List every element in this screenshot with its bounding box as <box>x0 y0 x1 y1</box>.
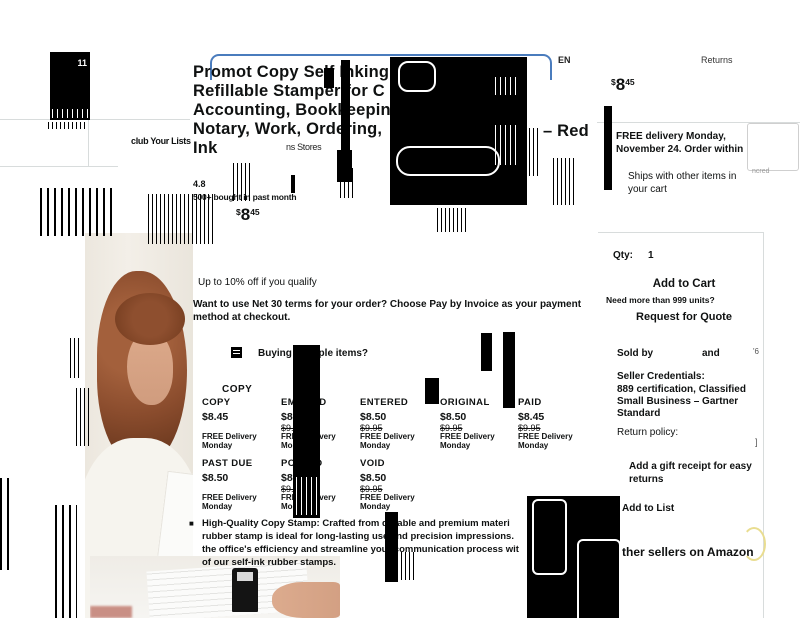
nav-lists-glitch[interactable]: club Your Lists <box>131 136 191 146</box>
fragment-text: ] <box>755 437 758 447</box>
gift-receipt-option-line2: returns <box>629 474 663 485</box>
seller-credentials-line: Standard <box>617 408 660 419</box>
gift-receipt-option[interactable]: Add a gift receipt for easy <box>629 461 752 472</box>
title-red-suffix: – Red <box>543 122 589 141</box>
coupon-offer[interactable]: Up to 10% off if you qualify <box>198 277 317 288</box>
variant-tile-entered[interactable]: ENTERED $8.50 $9.95 FREE Delivery Monday <box>360 397 436 450</box>
glitch-mark <box>553 158 575 205</box>
buybox-top-border <box>598 232 763 233</box>
variant-name: PAID <box>518 397 594 408</box>
glitch-mark <box>291 175 295 193</box>
glitch-mark <box>385 512 398 582</box>
seller-credentials-title: Seller Credentials: <box>617 371 705 382</box>
add-to-list-button[interactable]: Add to List <box>622 503 674 514</box>
variant-price: $8.45 <box>518 412 594 423</box>
variant-delivery-day: Monday <box>360 441 390 450</box>
glitch-mark <box>340 168 354 198</box>
variant-tile-paid[interactable]: PAID $8.45 $9.95 FREE Delivery Monday <box>518 397 594 450</box>
main-price: $845 <box>236 205 260 225</box>
glitch-mark <box>76 388 92 446</box>
glitch-arc <box>742 527 766 561</box>
glitch-mark <box>495 77 517 95</box>
need-more-units-note: Need more than 999 units? <box>606 295 715 305</box>
variant-delivery-day: Monday <box>440 441 470 450</box>
stamp-shape <box>232 568 258 612</box>
variant-delivery-day: Monday <box>202 502 232 511</box>
glitch-mark <box>529 128 541 176</box>
hand-shape <box>272 582 340 618</box>
qty-label: Qty: <box>613 250 633 261</box>
glitch-mark <box>148 194 214 244</box>
variant-tile-copy[interactable]: COPY $8.45 FREE Delivery Monday <box>202 397 278 450</box>
fragment-text: '6 <box>753 347 759 356</box>
sold-by-and: and <box>702 348 720 359</box>
fragment-text: ncred <box>752 168 770 175</box>
price-symbol: $ <box>236 207 241 217</box>
ships-note: Ships with other items in <box>628 171 736 182</box>
glitch-mark <box>437 208 468 232</box>
glitch-mark <box>0 478 10 570</box>
red-item-shape <box>90 606 132 618</box>
price-fraction: 45 <box>250 207 259 217</box>
glitch-mark <box>503 332 515 408</box>
bullet-line: High-Quality Copy Stamp: Crafted from du… <box>202 518 510 529</box>
variant-delivery-day: Monday <box>202 441 232 450</box>
panel-edge-fragment <box>88 119 89 167</box>
price-whole: 8 <box>241 205 250 224</box>
bottom-right-glitch-box <box>527 496 620 618</box>
panel-fragment-box <box>747 123 799 171</box>
qty-selector[interactable]: 1 <box>648 250 654 261</box>
variant-delivery-day: Monday <box>360 502 390 511</box>
delivery-promise: FREE delivery Monday, <box>616 131 726 142</box>
selected-variant-label: COPY <box>222 384 252 395</box>
bullet-line: of our self-ink rubber stamps. <box>202 557 336 568</box>
product-image-glitch[interactable] <box>390 57 527 205</box>
seller-credentials-line: Small Business – Gartner <box>617 396 738 407</box>
buybox-right-border <box>763 232 764 618</box>
glitch-mark <box>48 122 88 129</box>
hair-fringe <box>115 293 185 345</box>
price-whole: 8 <box>616 75 625 94</box>
glitch-mark <box>40 188 112 236</box>
glitch-outline <box>577 539 621 618</box>
glitch-mark <box>425 378 439 404</box>
variant-name: PAST DUE <box>202 458 278 469</box>
variant-price: $8.50 <box>360 412 436 423</box>
panel-edge-fragment <box>0 166 118 167</box>
variant-price: $8.50 <box>440 412 516 423</box>
other-sellers-link[interactable]: ther sellers on Amazon <box>622 545 754 559</box>
variant-tile-past-due[interactable]: PAST DUE $8.50 FREE Delivery Monday <box>202 458 278 511</box>
variant-tile-void[interactable]: VOID $8.50 $9.95 FREE Delivery Monday <box>360 458 436 511</box>
cart-nav-glitch-box[interactable]: 11 <box>50 52 90 120</box>
bullet-line: the office's efficiency and streamline y… <box>202 544 519 555</box>
glitch-mark <box>293 345 320 518</box>
glitch-mark <box>70 338 82 378</box>
add-to-cart-button[interactable]: Add to Cart <box>605 278 763 290</box>
bullet-line: rubber stamp is ideal for long-lasting u… <box>202 531 514 542</box>
variant-price: $8.45 <box>202 412 278 423</box>
glitch-outline <box>398 61 436 92</box>
variant-name: VOID <box>360 458 436 469</box>
bullet-marker: ■ <box>189 519 194 528</box>
seller-credentials-line: 889 certification, Classified <box>617 384 746 395</box>
delivery-promise: November 24. Order within <box>616 144 743 155</box>
variant-price: $8.50 <box>202 473 278 484</box>
glitch-mark <box>481 333 492 371</box>
glitch-mark <box>55 505 77 618</box>
nav-returns-link[interactable]: Returns <box>701 55 733 65</box>
cart-count-badge: 11 <box>77 58 87 68</box>
multi-item-icon <box>231 347 242 358</box>
glitch-mark <box>401 552 414 580</box>
ships-note: your cart <box>628 184 667 195</box>
store-link-fragment[interactable]: ns Stores <box>286 142 321 152</box>
glitch-outline <box>396 146 500 176</box>
return-policy-label[interactable]: Return policy: <box>617 427 678 438</box>
price-fraction: 45 <box>625 77 634 87</box>
buybox-price: $845 <box>611 75 635 95</box>
variant-delivery-day: Monday <box>518 441 548 450</box>
sold-by-label: Sold by <box>617 348 653 359</box>
glitch-mark <box>52 109 88 118</box>
glitch-mark <box>233 163 253 201</box>
rating-value[interactable]: 4.8 <box>193 179 206 189</box>
glitch-mark <box>604 106 612 190</box>
variant-name: COPY <box>202 397 278 408</box>
panel-edge-fragment <box>0 119 190 120</box>
price-symbol: $ <box>611 77 616 87</box>
glitch-outline <box>532 499 567 575</box>
glitch-mark <box>324 68 334 88</box>
variant-price: $8.50 <box>360 473 436 484</box>
net30-note: Want to use Net 30 terms for your order?… <box>193 298 605 324</box>
amazon-product-page: 11 club Your Lists EN Returns Promot Cop… <box>0 0 800 618</box>
request-quote-button[interactable]: Request for Quote <box>605 311 763 323</box>
